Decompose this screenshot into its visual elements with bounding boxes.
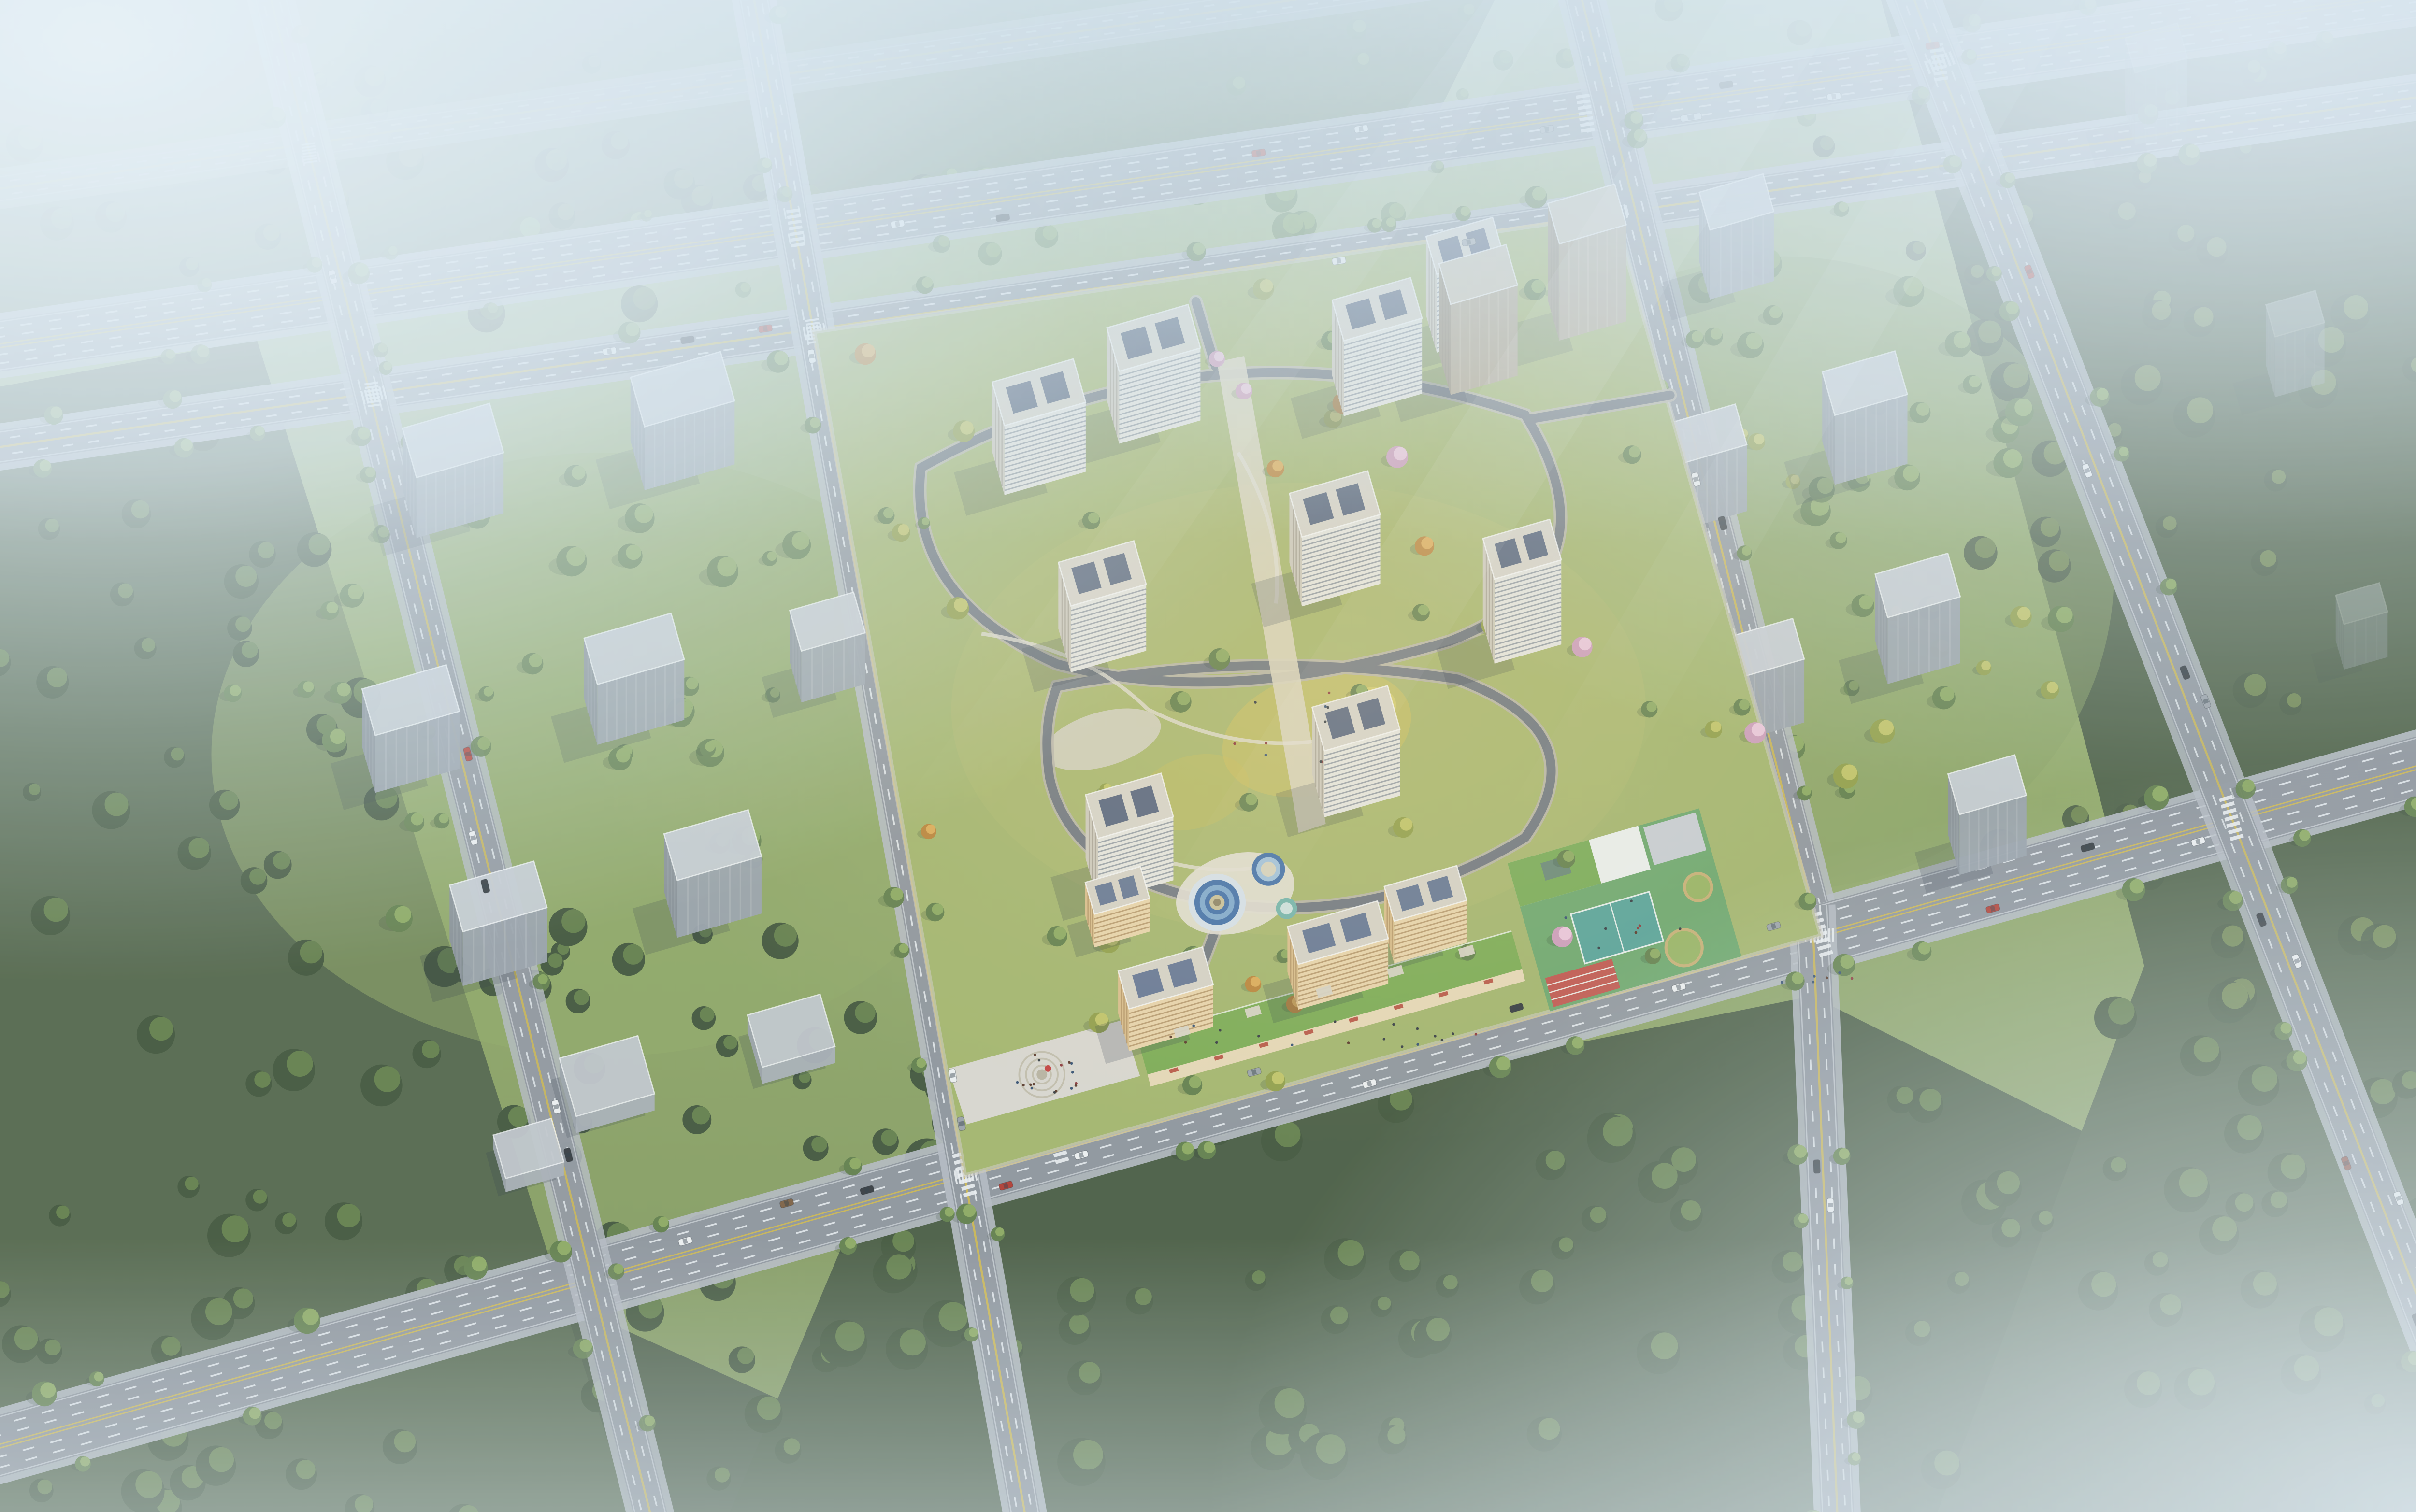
scene-svg: Aerial bird's-eye architectural renderin…: [0, 0, 2416, 1512]
atmosphere-layer: [0, 0, 2416, 1512]
aerial-masterplan-render: Aerial bird's-eye architectural renderin…: [0, 0, 2416, 1512]
blue-tint: [0, 0, 2416, 1512]
